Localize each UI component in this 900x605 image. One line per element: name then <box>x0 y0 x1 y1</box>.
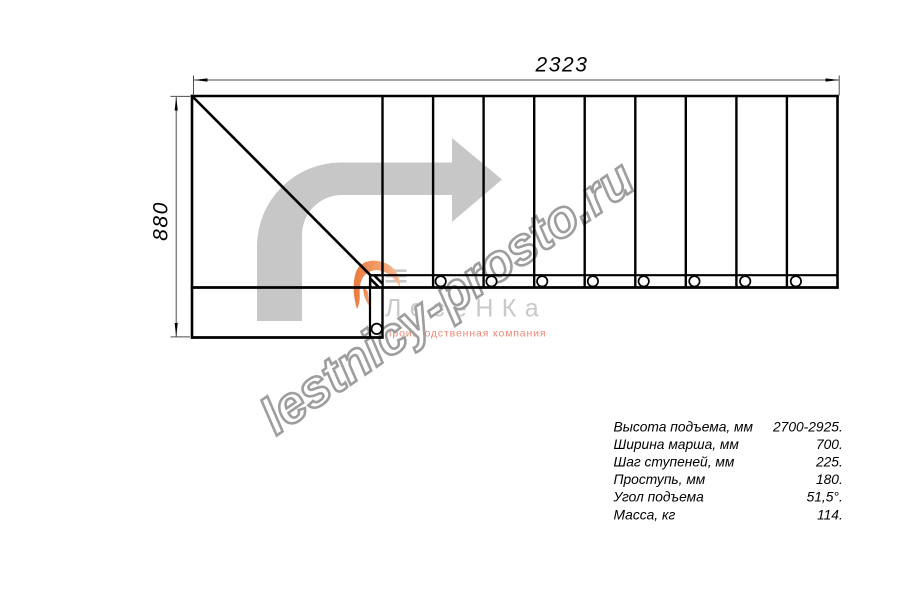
svg-text:51,5°.: 51,5°. <box>807 490 843 505</box>
svg-text:2700-2925.: 2700-2925. <box>772 420 843 435</box>
svg-text:700.: 700. <box>816 437 843 452</box>
svg-text:Высота подъема, мм: Высота подъема, мм <box>614 420 754 435</box>
svg-text:Масса, кг: Масса, кг <box>614 507 676 522</box>
svg-text:880: 880 <box>149 201 172 241</box>
svg-text:2323: 2323 <box>534 54 588 77</box>
svg-text:Ширина марша, мм: Ширина марша, мм <box>614 437 740 452</box>
svg-text:114.: 114. <box>817 507 843 522</box>
svg-text:Проступь, мм: Проступь, мм <box>614 472 706 487</box>
svg-text:Шаг ступеней, мм: Шаг ступеней, мм <box>614 455 735 470</box>
svg-text:225.: 225. <box>815 455 843 470</box>
svg-text:Угол подъема: Угол подъема <box>613 490 705 505</box>
svg-text:180.: 180. <box>816 472 843 487</box>
